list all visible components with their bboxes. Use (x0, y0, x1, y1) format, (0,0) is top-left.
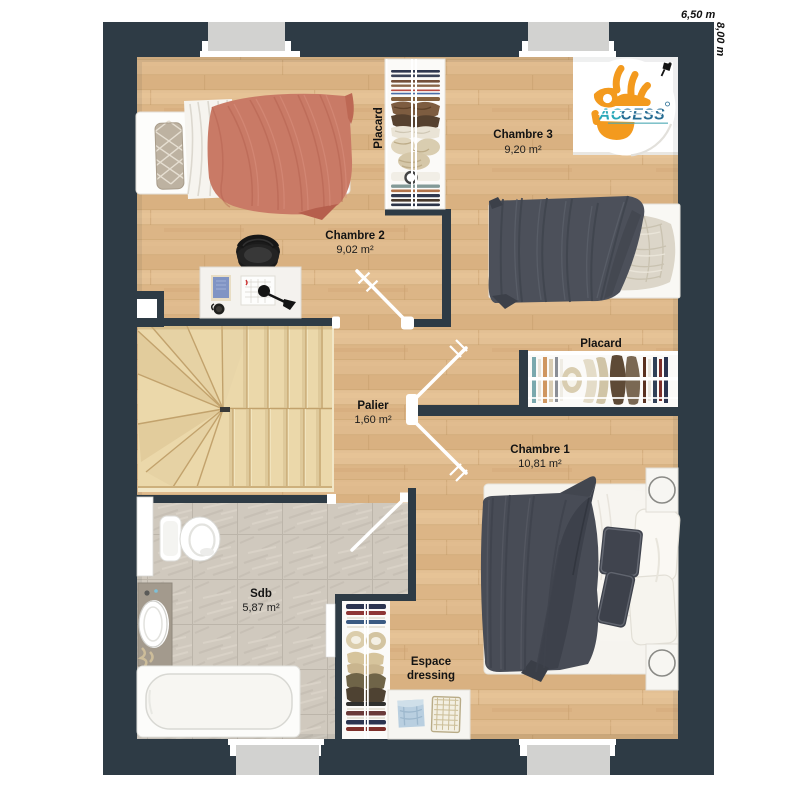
svg-text:dressing: dressing (407, 670, 455, 682)
svg-text:Chambre 3: Chambre 3 (493, 129, 552, 141)
svg-text:10,81 m²: 10,81 m² (518, 458, 562, 470)
svg-text:CESS: CESS (621, 107, 666, 124)
svg-text:Chambre 1: Chambre 1 (510, 444, 570, 456)
svg-text:Palier: Palier (357, 400, 389, 412)
svg-text:Chambre 2: Chambre 2 (325, 230, 384, 242)
svg-text:9,02 m²: 9,02 m² (336, 244, 374, 256)
svg-text:Placard: Placard (373, 107, 385, 149)
svg-text:9,20 m²: 9,20 m² (504, 144, 542, 156)
svg-text:1,60 m²: 1,60 m² (354, 414, 392, 426)
svg-text:8,00 m: 8,00 m (714, 22, 726, 56)
svg-text:AC: AC (598, 107, 623, 124)
svg-text:6,50 m: 6,50 m (681, 9, 715, 21)
svg-text:Espace: Espace (411, 656, 451, 668)
svg-text:Sdb: Sdb (250, 588, 272, 600)
svg-text:Placard: Placard (580, 338, 622, 350)
svg-text:5,87 m²: 5,87 m² (242, 602, 280, 614)
